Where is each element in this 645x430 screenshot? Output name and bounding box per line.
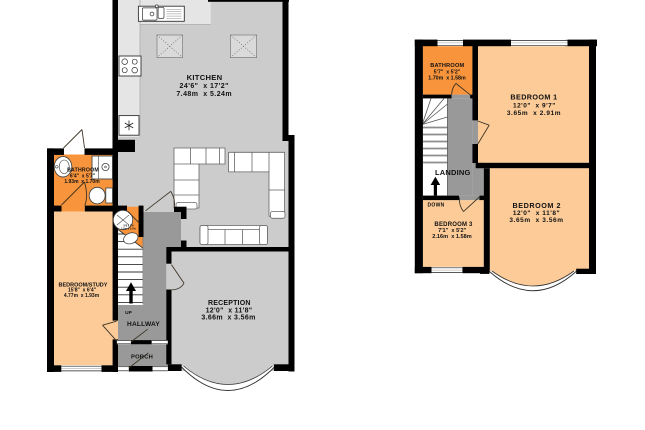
svg-text:5'7" x 5'2": 5'7" x 5'2" bbox=[434, 69, 461, 75]
svg-text:KITCHEN: KITCHEN bbox=[187, 73, 223, 82]
svg-text:HALLWAY: HALLWAY bbox=[127, 321, 160, 328]
svg-text:BATHROOM: BATHROOM bbox=[67, 168, 99, 174]
svg-text:12'0" x 9'7": 12'0" x 9'7" bbox=[513, 102, 556, 109]
svg-text:3.66m x 3.56m: 3.66m x 3.56m bbox=[201, 315, 255, 322]
svg-text:DOWN: DOWN bbox=[427, 202, 444, 208]
svg-text:1.93m x 1.70m: 1.93m x 1.70m bbox=[64, 179, 100, 185]
svg-text:3.65m x 3.56m: 3.65m x 3.56m bbox=[509, 217, 563, 224]
svg-text:BEDROOM 1: BEDROOM 1 bbox=[510, 93, 557, 102]
svg-text:LANDING: LANDING bbox=[435, 168, 471, 177]
svg-text:RECEPTION: RECEPTION bbox=[208, 300, 251, 307]
svg-text:BEDROOM 2: BEDROOM 2 bbox=[513, 201, 561, 210]
svg-text:BATHROOM: BATHROOM bbox=[430, 63, 464, 69]
svg-text:1.6m x 0.7m: 1.6m x 0.7m bbox=[121, 227, 136, 231]
svg-text:PORCH: PORCH bbox=[131, 354, 153, 360]
svg-text:4.77m x 1.93m: 4.77m x 1.93m bbox=[64, 293, 100, 299]
svg-text:12'0" x 11'8": 12'0" x 11'8" bbox=[206, 307, 253, 314]
svg-text:12'0" x 11'8": 12'0" x 11'8" bbox=[513, 210, 560, 217]
svg-text:UP: UP bbox=[125, 310, 132, 316]
svg-text:2.16m x 1.58m: 2.16m x 1.58m bbox=[432, 234, 472, 240]
svg-text:7.48m x 5.24m: 7.48m x 5.24m bbox=[176, 91, 232, 98]
svg-text:3.65m x 2.91m: 3.65m x 2.91m bbox=[507, 110, 561, 117]
svg-text:1.70m x 1.58m: 1.70m x 1.58m bbox=[428, 76, 466, 82]
svg-text:24'6" x 17'2": 24'6" x 17'2" bbox=[180, 83, 229, 90]
